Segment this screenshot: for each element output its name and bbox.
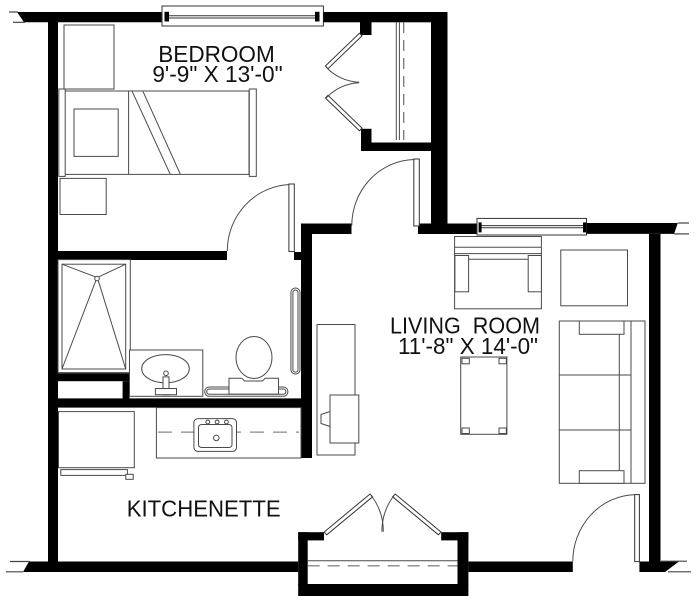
svg-text:KITCHENETTE: KITCHENETTE [127, 495, 281, 521]
svg-text:11'-8" X 14'-0": 11'-8" X 14'-0" [398, 333, 538, 359]
svg-text:9'-9" X 13'-0": 9'-9" X 13'-0" [152, 61, 282, 87]
